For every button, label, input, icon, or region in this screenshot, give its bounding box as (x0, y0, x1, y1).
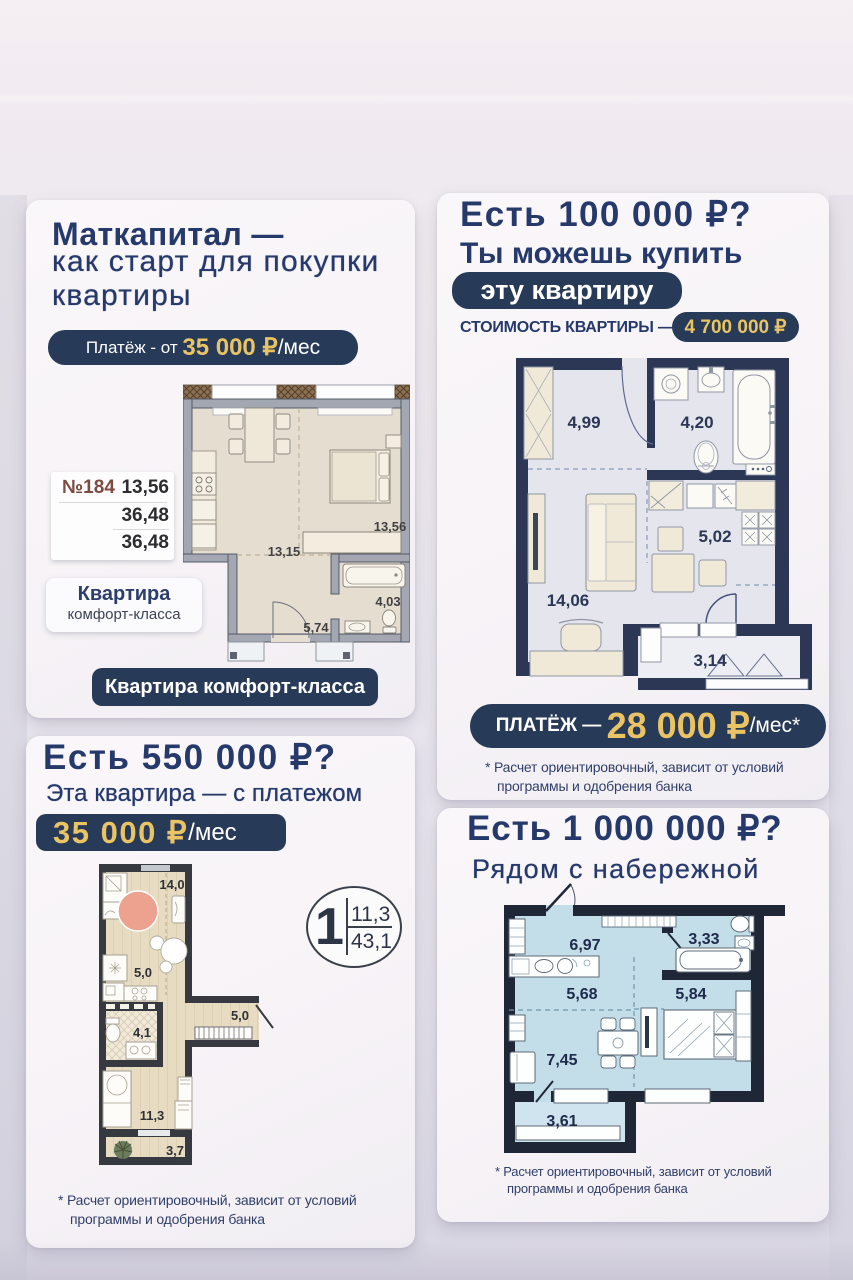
svg-text:3,33: 3,33 (688, 931, 719, 948)
svg-text:3,61: 3,61 (546, 1113, 577, 1130)
svg-text:11,3: 11,3 (140, 1108, 165, 1123)
svg-text:5,02: 5,02 (698, 527, 731, 546)
svg-text:5,74: 5,74 (303, 620, 329, 635)
svg-text:14,06: 14,06 (547, 591, 590, 610)
svg-text:14,0: 14,0 (159, 877, 184, 892)
svg-text:5,68: 5,68 (566, 986, 597, 1003)
svg-text:5,84: 5,84 (675, 986, 706, 1003)
svg-text:6,97: 6,97 (569, 937, 600, 954)
svg-text:4,03: 4,03 (375, 594, 400, 609)
svg-text:13,15: 13,15 (268, 544, 301, 559)
svg-text:4,99: 4,99 (567, 413, 600, 432)
svg-text:4,1: 4,1 (133, 1025, 151, 1040)
svg-text:3,14: 3,14 (693, 651, 727, 670)
svg-text:4,20: 4,20 (680, 413, 713, 432)
svg-text:13,56: 13,56 (374, 519, 407, 534)
svg-text:3,7: 3,7 (166, 1143, 184, 1158)
svg-text:5,0: 5,0 (134, 965, 152, 980)
svg-text:5,0: 5,0 (231, 1008, 249, 1023)
svg-text:7,45: 7,45 (546, 1052, 577, 1069)
